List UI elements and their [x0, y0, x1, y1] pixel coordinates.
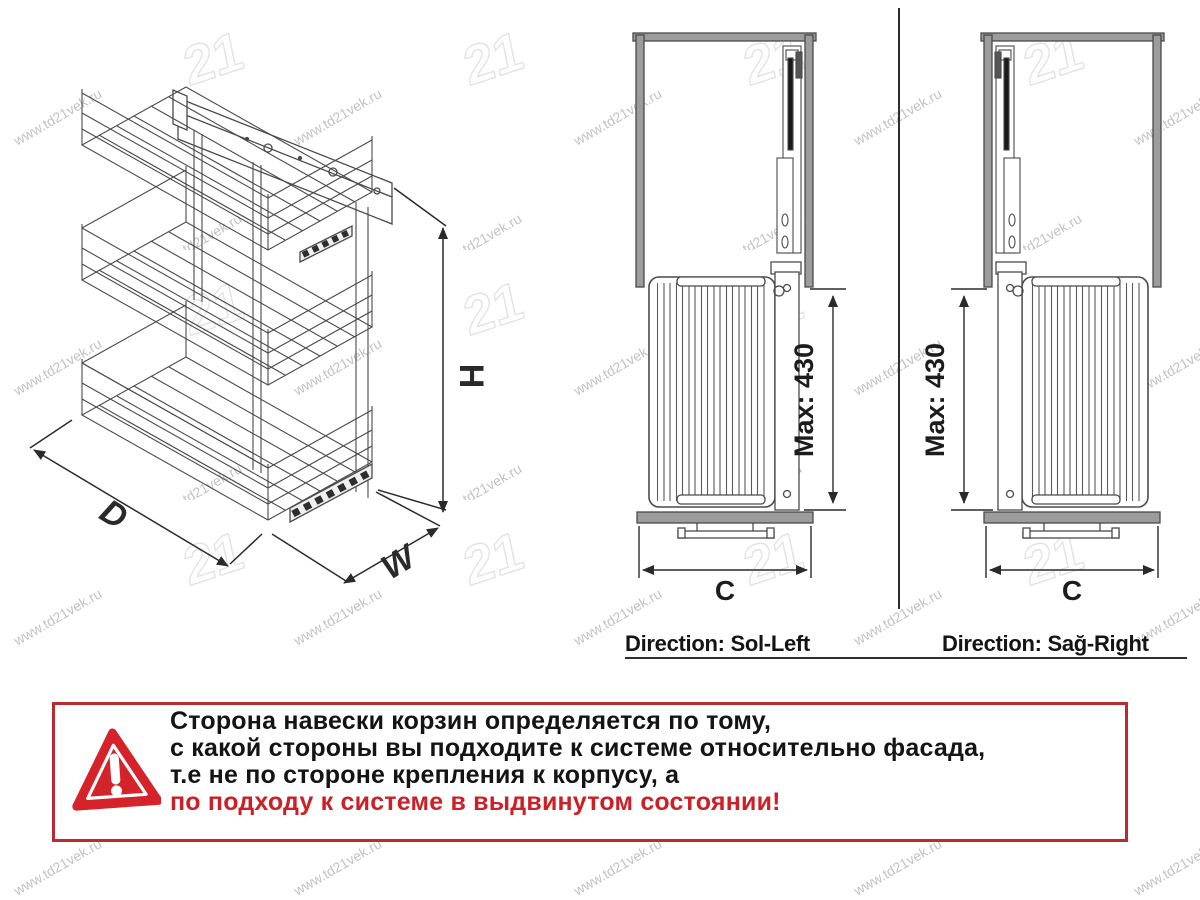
direction-label-right: Direction: Sağ-Right [942, 631, 1149, 657]
view-separator-line [898, 8, 900, 609]
basket-front [649, 262, 801, 510]
rail-assembly [777, 46, 802, 253]
warning-line: Сторона навески корзин определяется по т… [170, 708, 1120, 735]
iso-depth-label: D [93, 492, 134, 537]
dim-max-height [951, 289, 993, 510]
base-and-foot [984, 512, 1160, 538]
direction-underline [625, 657, 1187, 659]
iso-basket-drawing: D W H [30, 87, 490, 587]
warning-line: с какой стороны вы подходите к системе о… [170, 735, 1120, 762]
iso-upper-slide [300, 226, 352, 262]
front-view-left: Max: 430 C [633, 33, 846, 606]
rail-assembly [995, 46, 1020, 253]
warning-line: т.е не по стороне крепления к корпусу, а [170, 762, 1120, 789]
warning-triangle-icon [69, 727, 161, 811]
page: www.td21vek.ru www.td21vek.ru 21 [0, 0, 1200, 900]
iso-height-label: H [452, 364, 490, 389]
basket-front [996, 262, 1148, 510]
width-c-label: C [715, 575, 735, 606]
width-c-label: C [1062, 575, 1082, 606]
base-and-foot [637, 512, 813, 538]
warning-highlight-line: по подходу к системе в выдвинутом состоя… [170, 789, 1120, 816]
max-height-label: Max: 430 [920, 343, 950, 457]
iso-dim-height [378, 188, 446, 512]
iso-dim-depth [30, 420, 262, 566]
iso-bottom-slide [290, 464, 372, 522]
warning-text: Сторона навески корзин определяется по т… [170, 708, 1120, 816]
max-height-label: Max: 430 [789, 343, 819, 457]
direction-label-left: Direction: Sol-Left [625, 631, 810, 657]
iso-width-label: W [375, 537, 425, 588]
front-view-right: Max: 430 C [920, 33, 1164, 606]
